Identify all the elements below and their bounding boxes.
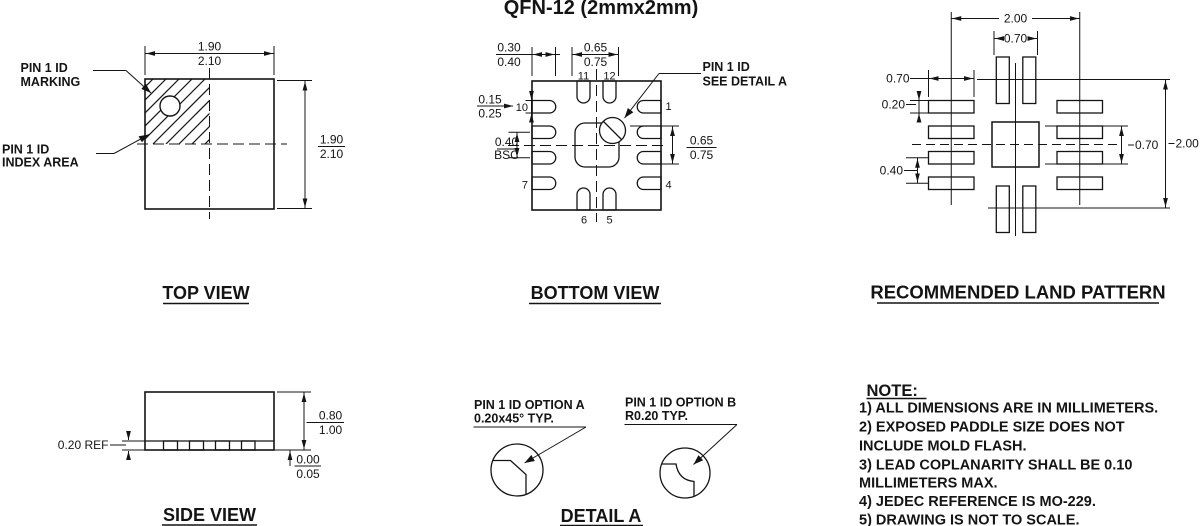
dimension-pad-length: 0.70 [886, 70, 974, 97]
svg-text:0.80: 0.80 [319, 409, 343, 423]
top-view-title: TOP VIEW [162, 283, 249, 303]
svg-text:0.00: 0.00 [296, 453, 320, 467]
package-drawing-sheet: QFN-12 (2mmx2mm) 1.90 2.10 [0, 0, 1200, 526]
note-line: INCLUDE MOLD FLASH. [859, 438, 1027, 454]
lead [190, 441, 204, 450]
svg-text:PIN 1 ID: PIN 1 ID [703, 60, 750, 74]
pin1-id-marking-circle [160, 96, 180, 116]
lead [164, 441, 178, 450]
svg-text:0.70: 0.70 [1004, 32, 1028, 46]
svg-text:0.30: 0.30 [497, 41, 521, 55]
land-pad [1023, 57, 1036, 104]
dimension-top-pads: 0.70 [994, 31, 1038, 55]
bottom-view-title: BOTTOM VIEW [531, 283, 660, 303]
svg-text:0.75: 0.75 [584, 55, 608, 69]
svg-text:PIN 1 ID: PIN 1 ID [21, 61, 68, 75]
pin1-option-a: PIN 1 ID OPTION A 0.20x45° TYP. [474, 398, 587, 496]
svg-text:0.25: 0.25 [478, 107, 502, 121]
land-pattern-title: RECOMMENDED LAND PATTERN [870, 282, 1165, 303]
pad [637, 126, 661, 139]
pin-number: 10 [516, 102, 528, 114]
svg-text:0.20 REF: 0.20 REF [58, 438, 109, 452]
dimension-height: 0.80 1.00 [274, 392, 344, 450]
dimension-height: 1.90 2.10 [277, 81, 345, 209]
pad [532, 101, 556, 114]
dimension-pitch: 0.40 BSC [494, 132, 530, 162]
pad [637, 177, 661, 190]
note-line: MILLIMETERS MAX. [859, 476, 998, 492]
svg-text:0.70: 0.70 [1135, 138, 1159, 152]
pin1-index-label: PIN 1 ID INDEX AREA [2, 135, 149, 170]
pin-number: 12 [603, 71, 615, 83]
dimension-lead-width: 0.15 0.25 [477, 92, 539, 122]
detail-circle [491, 444, 543, 496]
svg-text:2.10: 2.10 [320, 147, 344, 161]
pad [603, 81, 616, 103]
side-view: 0.20 REF 0.80 1.00 0.00 0.05 SIDE VIEW [58, 392, 344, 525]
svg-text:0.70: 0.70 [886, 72, 910, 86]
lead [216, 441, 230, 450]
pad [603, 188, 616, 210]
svg-text:PIN 1 ID: PIN 1 ID [2, 143, 49, 157]
svg-text:2.10: 2.10 [198, 54, 222, 68]
dimension-lead-thickness: 0.20 REF [58, 431, 145, 460]
pin-number: 11 [578, 71, 589, 83]
svg-text:PIN 1 ID OPTION B: PIN 1 ID OPTION B [625, 396, 736, 410]
chamfer-corner [493, 461, 526, 495]
svg-text:INDEX AREA: INDEX AREA [2, 156, 79, 170]
note-line: 2) EXPOSED PADDLE SIZE DOES NOT [859, 420, 1125, 436]
page-title: QFN-12 (2mmx2mm) [504, 0, 699, 19]
top-view: 1.90 2.10 1.90 2.10 PIN 1 ID MARKING PIN… [2, 40, 345, 304]
dimension-span-right: 2.00 [1166, 80, 1200, 209]
pad [637, 152, 661, 165]
svg-text:0.65: 0.65 [690, 134, 714, 148]
dimension-pad-width: 0.20 [882, 92, 928, 121]
note-line: 4) JEDEC REFERENCE IS MO-229. [859, 494, 1096, 510]
pin1-option-b: PIN 1 ID OPTION B R0.20 TYP. [625, 396, 738, 499]
pin-number: 7 [522, 180, 528, 192]
leader-arrow [126, 71, 151, 94]
detail-a: PIN 1 ID OPTION A 0.20x45° TYP. PIN 1 ID… [474, 396, 738, 526]
svg-text:0.15: 0.15 [478, 93, 502, 107]
pin1-marking-label: PIN 1 ID MARKING [21, 61, 152, 93]
pad [532, 177, 556, 190]
notes: NOTE: 1) ALL DIMENSIONS ARE IN MILLIMETE… [859, 382, 1158, 526]
detail-circle [660, 448, 710, 498]
drawing-svg: QFN-12 (2mmx2mm) 1.90 2.10 [0, 0, 1200, 526]
pad [577, 188, 590, 210]
pin-number: 4 [666, 180, 672, 192]
radius-corner [662, 464, 694, 496]
pin-number: 6 [581, 215, 587, 227]
pin-number: 5 [606, 215, 612, 227]
pad [637, 101, 661, 114]
pad [532, 152, 556, 165]
side-view-title: SIDE VIEW [163, 505, 256, 525]
dimension-standoff: 0.00 0.05 [290, 450, 321, 481]
svg-text:1.90: 1.90 [198, 40, 222, 54]
pad [577, 81, 590, 103]
dimension-lead-length: 0.30 0.40 [496, 41, 560, 77]
note-line: 1) ALL DIMENSIONS ARE IN MILLIMETERS. [859, 401, 1158, 417]
svg-text:BSC: BSC [494, 148, 519, 162]
svg-text:0.20x45° TYP.: 0.20x45° TYP. [474, 412, 554, 426]
notes-title: NOTE: [867, 382, 918, 400]
svg-text:0.40: 0.40 [497, 55, 521, 69]
svg-text:0.75: 0.75 [690, 148, 714, 162]
pin1-callout: PIN 1 ID SEE DETAIL A [625, 60, 788, 118]
note-line: 5) DRAWING IS NOT TO SCALE. [859, 512, 1079, 526]
land-pad [996, 186, 1009, 233]
land-pattern: 2.00 0.70 0.70 0.2 [870, 12, 1199, 304]
pad [532, 126, 556, 139]
svg-text:2.00: 2.00 [1004, 12, 1028, 26]
detail-a-title: DETAIL A [561, 506, 642, 526]
note-line: 3) LEAD COPLANARITY SHALL BE 0.10 [859, 457, 1132, 473]
svg-text:0.65: 0.65 [584, 41, 608, 55]
dimension-pitch: 0.40 [880, 158, 929, 184]
land-pad [996, 57, 1009, 104]
land-pad [1023, 186, 1036, 233]
svg-text:1.00: 1.00 [319, 423, 343, 437]
svg-text:0.40: 0.40 [880, 164, 904, 178]
pin-number: 1 [666, 101, 672, 113]
svg-text:0.40: 0.40 [495, 135, 519, 149]
svg-text:R0.20 TYP.: R0.20 TYP. [625, 409, 688, 423]
svg-text:PIN 1 ID OPTION A: PIN 1 ID OPTION A [474, 398, 585, 412]
svg-text:MARKING: MARKING [21, 75, 81, 89]
svg-text:0.20: 0.20 [882, 98, 906, 112]
svg-text:1.90: 1.90 [320, 133, 344, 147]
svg-text:SEE DETAIL A: SEE DETAIL A [703, 75, 788, 89]
svg-text:2.00: 2.00 [1176, 137, 1200, 151]
lead [242, 441, 256, 450]
bottom-view: 0.30 0.40 0.65 0.75 0.15 0.25 [477, 41, 787, 304]
svg-text:0.05: 0.05 [296, 467, 320, 481]
dimension-span-top: 2.00 [951, 12, 1080, 26]
